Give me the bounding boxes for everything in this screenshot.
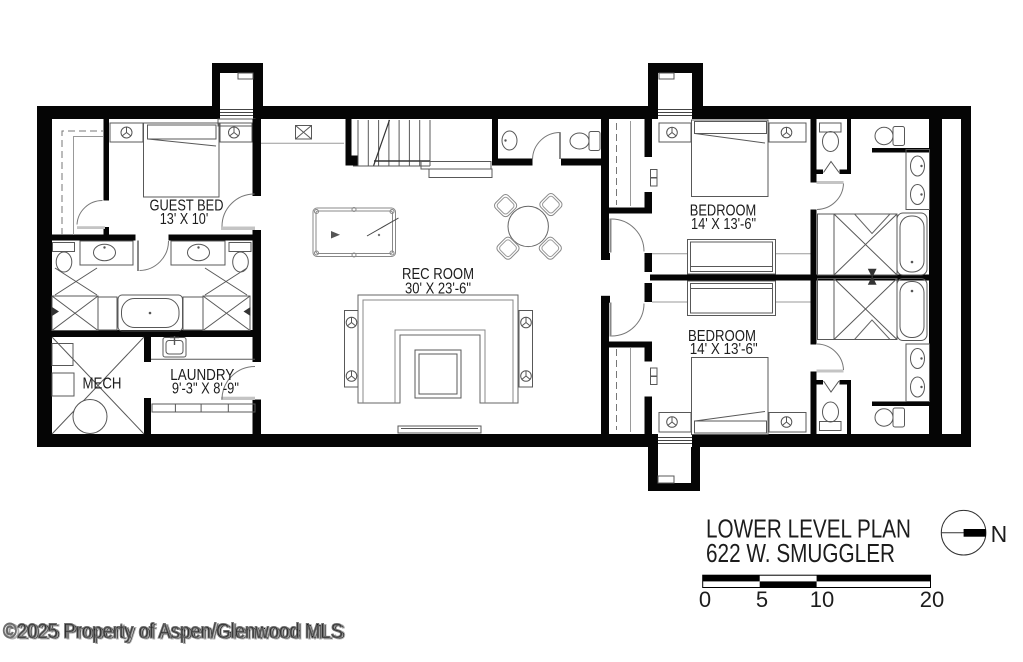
svg-text:14' X 13'-6": 14' X 13'-6"	[691, 216, 756, 233]
svg-text:20: 20	[920, 587, 944, 612]
svg-text:13' X 10': 13' X 10'	[160, 211, 209, 228]
svg-text:MECH: MECH	[83, 376, 122, 393]
svg-text:14' X 13'-6": 14' X 13'-6"	[690, 341, 758, 358]
svg-text:0: 0	[699, 587, 711, 612]
svg-text:622 W. SMUGGLER: 622 W. SMUGGLER	[706, 540, 895, 568]
svg-text:©2025 Property of Aspen/Glenwo: ©2025 Property of Aspen/Glenwood MLS	[3, 620, 343, 643]
svg-text:5: 5	[756, 587, 768, 612]
svg-text:N: N	[991, 521, 1008, 547]
svg-text:10: 10	[810, 587, 834, 612]
svg-text:9'-3" X 8'-9": 9'-3" X 8'-9"	[172, 381, 239, 398]
svg-text:30' X 23'-6": 30' X 23'-6"	[405, 281, 471, 298]
